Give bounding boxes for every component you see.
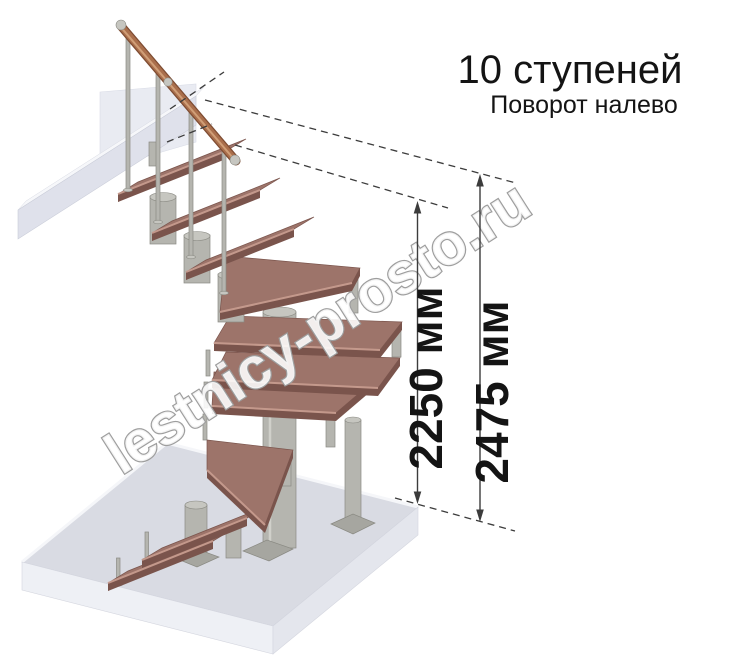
baluster-1-base [124, 188, 133, 192]
staircase-diagram: lestnicy-prosto.ru 2250 мм 2475 мм 10 ст… [0, 0, 744, 655]
title-block: 10 ступеней Поворот налево [458, 48, 683, 119]
baluster-3-base [187, 255, 196, 259]
baluster-4 [222, 146, 226, 293]
staircase-illustration: lestnicy-prosto.ru 2250 мм 2475 мм 10 ст… [0, 0, 744, 655]
dimension-label-2475: 2475 мм [466, 300, 518, 483]
baluster-3 [189, 106, 193, 257]
front-rod-2 [145, 532, 149, 560]
page-subtitle: Поворот налево [490, 91, 678, 119]
arrow-up [414, 201, 422, 214]
extension-line-total-top [205, 100, 516, 183]
handrail-sleeve [164, 78, 172, 86]
stringer-cap-1 [150, 193, 176, 202]
arrow-down [414, 492, 422, 505]
balusters [124, 36, 229, 295]
handrail-top-cap [116, 20, 126, 30]
extension-line-inner-top [235, 145, 448, 208]
page-title: 10 ступеней [458, 48, 683, 92]
baluster-4-base [220, 291, 229, 295]
stringer-cap-2 [184, 232, 210, 241]
lower-support-cap [185, 501, 207, 509]
baluster-1 [126, 36, 130, 190]
dimension-label-2250: 2250 мм [400, 286, 452, 469]
baluster-2-base [154, 220, 163, 224]
baluster-2 [156, 70, 160, 222]
handrail-end-cap [230, 155, 240, 165]
right-support-cap [345, 417, 361, 423]
arrow-up [476, 174, 484, 187]
right-support-column [345, 420, 361, 524]
